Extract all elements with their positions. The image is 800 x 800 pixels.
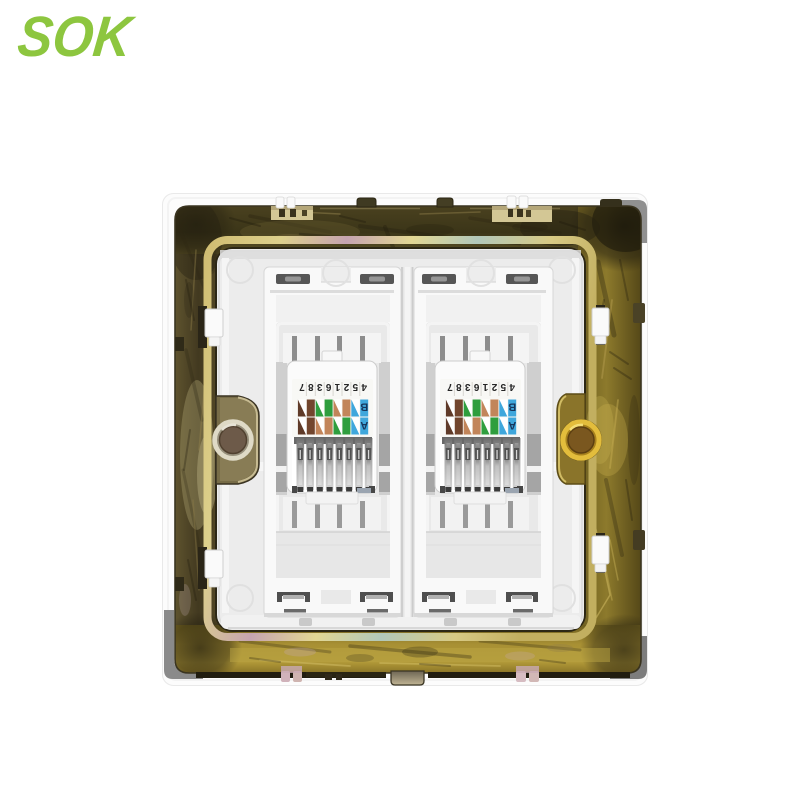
svg-text:6: 6: [325, 381, 331, 392]
svg-text:5: 5: [352, 381, 358, 392]
svg-text:B: B: [360, 401, 368, 413]
svg-text:SOK: SOK: [15, 5, 138, 69]
svg-text:8: 8: [308, 381, 314, 392]
svg-text:1: 1: [334, 381, 340, 392]
svg-text:4: 4: [361, 381, 367, 392]
svg-text:3: 3: [316, 381, 322, 392]
svg-text:7: 7: [299, 381, 305, 392]
svg-text:2: 2: [343, 381, 349, 392]
svg-text:A: A: [360, 419, 368, 431]
